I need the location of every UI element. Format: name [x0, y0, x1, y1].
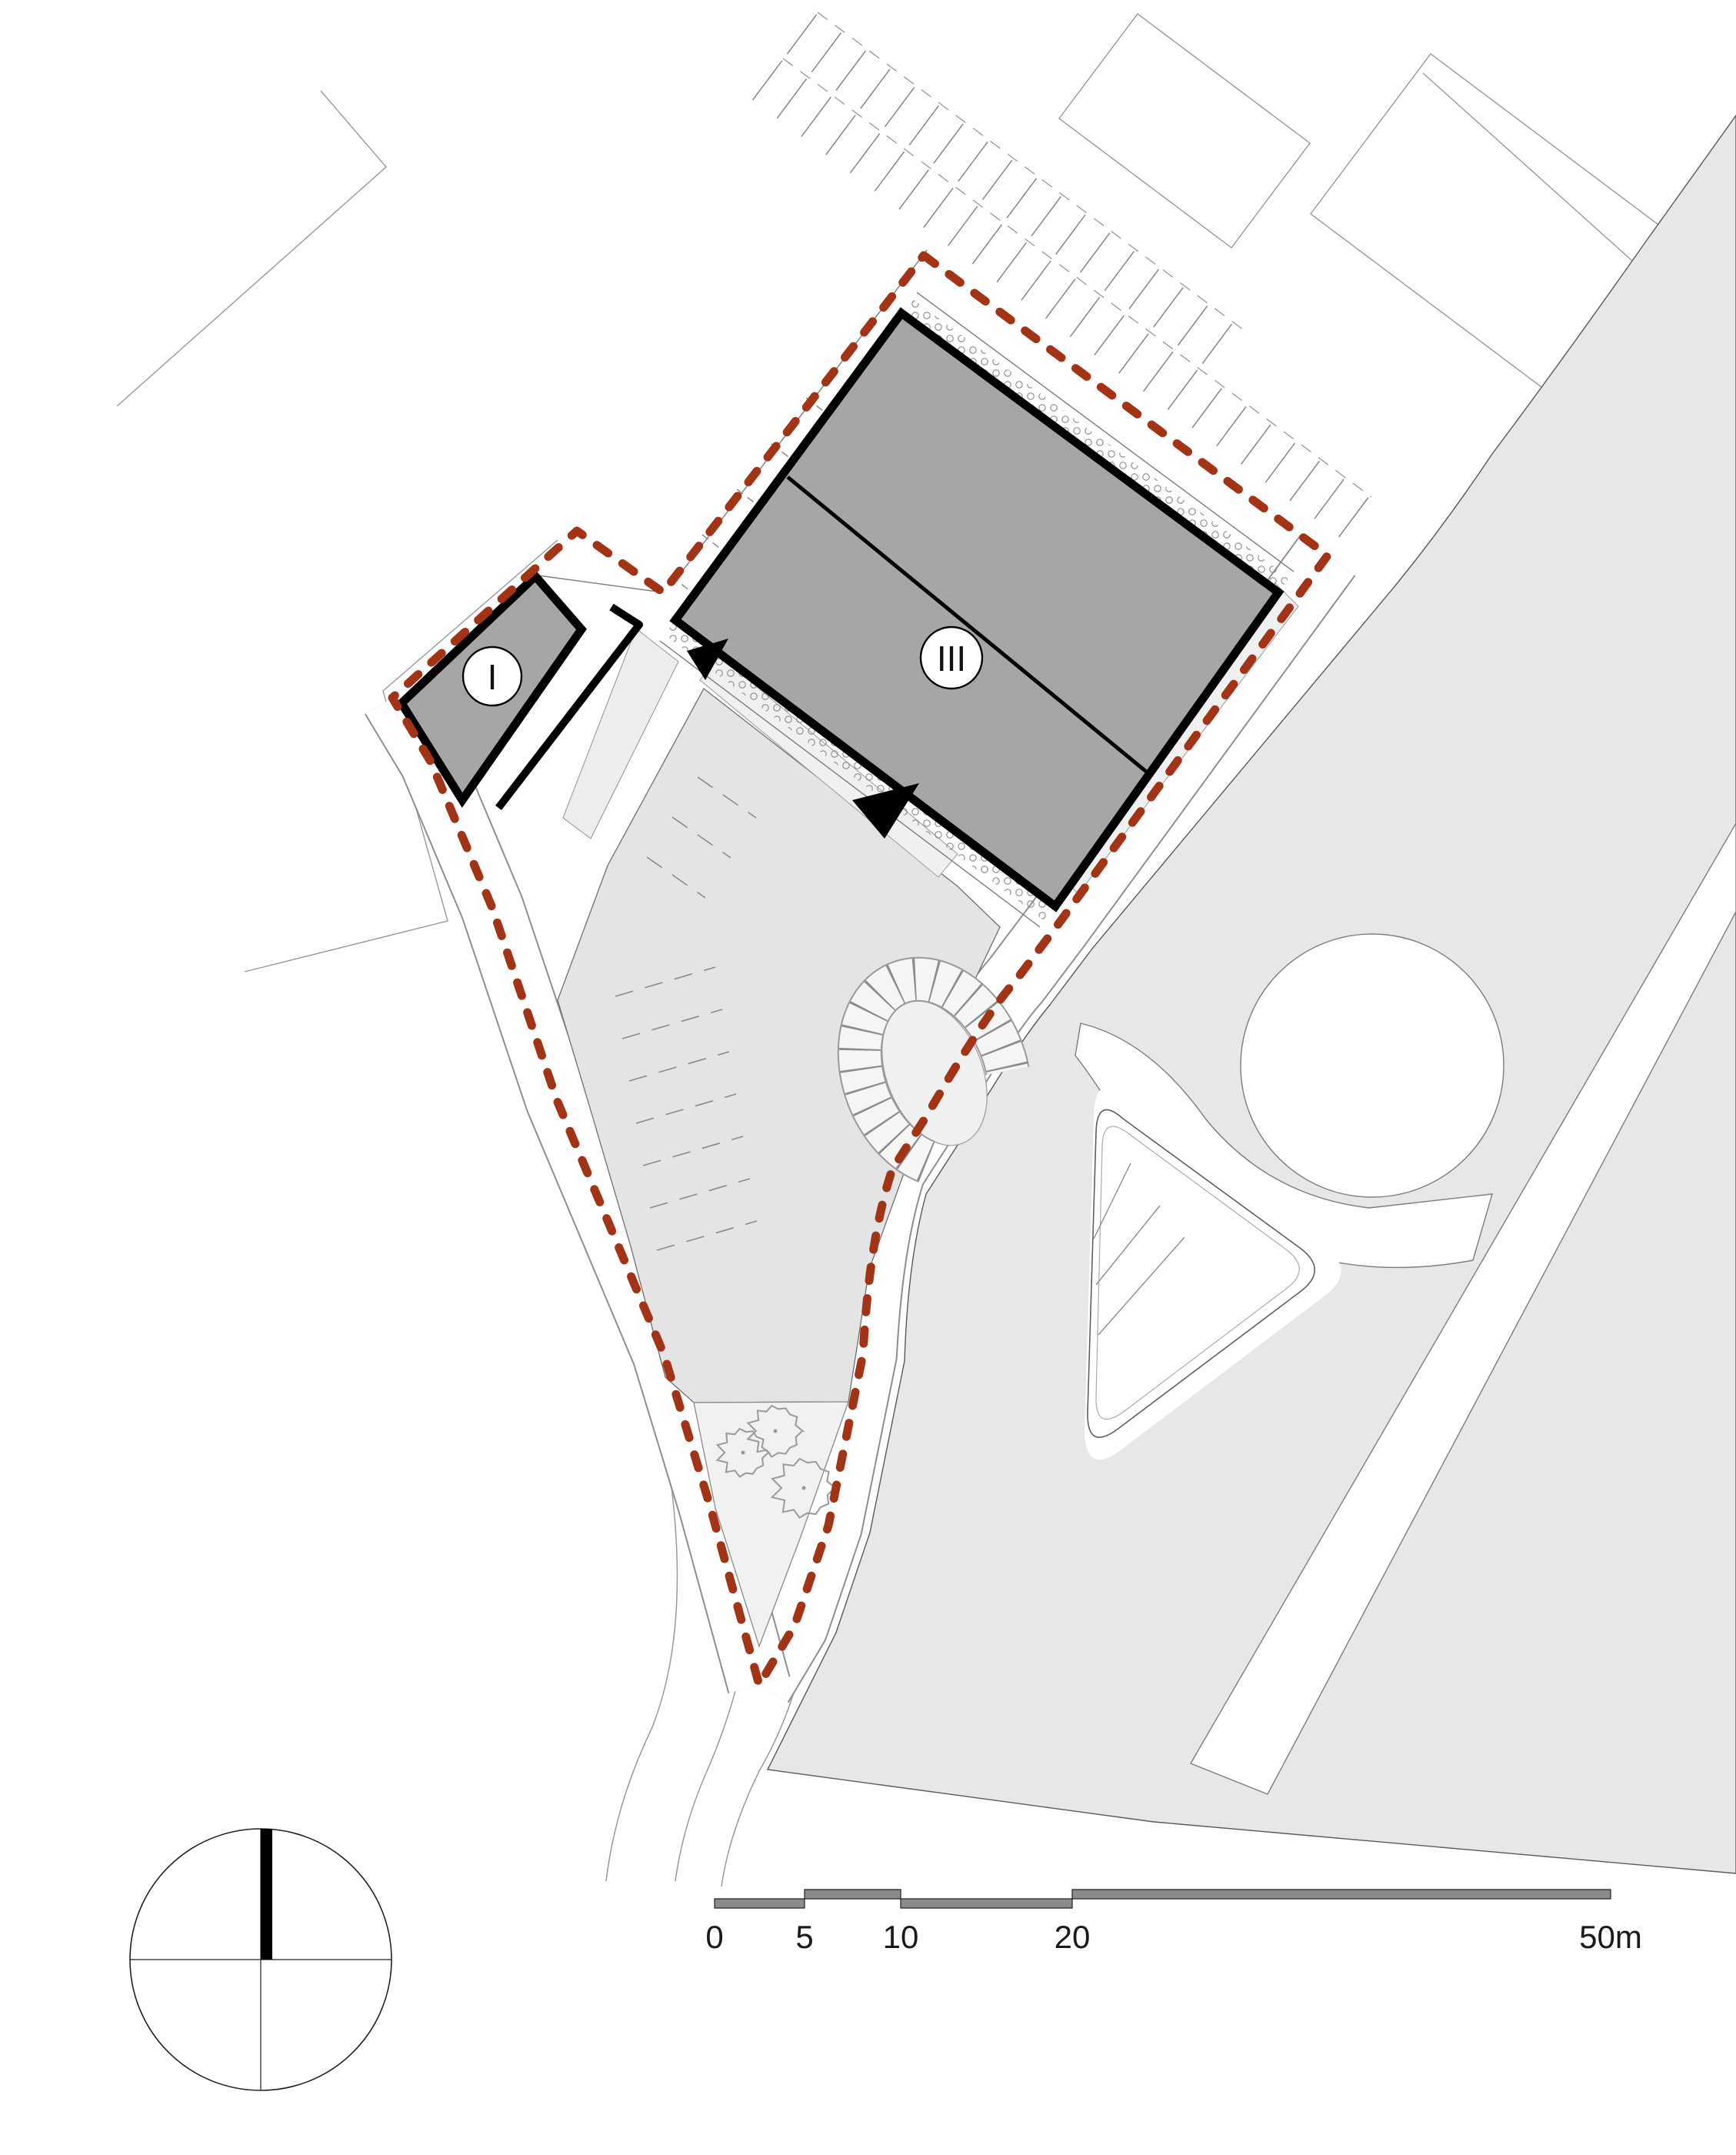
scale-tick-label: 5: [795, 1919, 813, 1955]
scale-tick-label: 0: [705, 1919, 723, 1955]
tree-center-dot: [802, 1486, 806, 1490]
traffic-circle: [1241, 934, 1504, 1197]
building-i-label-text: I: [488, 657, 498, 697]
scale-tick-label: 50m: [1579, 1919, 1642, 1955]
tree-center-dot: [774, 1429, 778, 1433]
north-arrow-icon: [261, 1829, 272, 1960]
scale-segment: [901, 1899, 1072, 1908]
building-i-label: I: [463, 647, 521, 706]
scale-segment: [715, 1899, 805, 1908]
scale-segment: [1072, 1890, 1611, 1899]
tree-center-dot: [741, 1451, 745, 1455]
scale-tick-label: 20: [1055, 1919, 1091, 1955]
scale-tick-label: 10: [883, 1919, 919, 1955]
scale-segment: [805, 1890, 901, 1899]
building-iii-label: III: [921, 627, 982, 689]
building-iii-label-text: III: [937, 639, 966, 679]
site-plan-canvas: I III 0 5 10 20 50m: [0, 0, 1736, 2155]
